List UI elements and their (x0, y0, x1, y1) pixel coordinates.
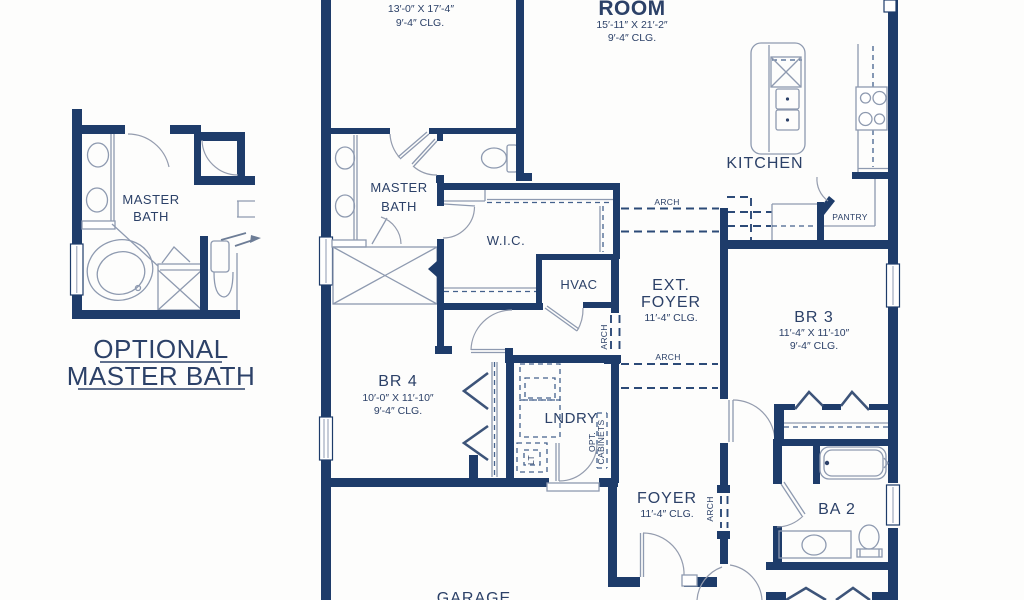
svg-text:ROOM: ROOM (598, 0, 665, 20)
svg-text:9′-4″ CLG.: 9′-4″ CLG. (374, 405, 422, 417)
svg-text:FOYER: FOYER (641, 294, 701, 311)
svg-text:BA 2: BA 2 (818, 501, 856, 518)
svg-text:EXT.: EXT. (652, 277, 690, 294)
svg-text:GARAGE: GARAGE (437, 590, 511, 600)
svg-text:CABINETS: CABINETS (596, 420, 606, 465)
svg-text:LNDRY: LNDRY (544, 410, 597, 427)
svg-text:11′-4″ X 11′-10″: 11′-4″ X 11′-10″ (779, 327, 850, 339)
svg-text:LT: LT (526, 455, 536, 465)
svg-text:ARCH: ARCH (654, 197, 679, 207)
svg-text:ARCH: ARCH (705, 496, 715, 521)
svg-text:9′-4″ CLG.: 9′-4″ CLG. (790, 340, 838, 352)
svg-text:MASTER BATH: MASTER BATH (67, 361, 255, 391)
svg-text:9′-4″ CLG.: 9′-4″ CLG. (608, 32, 656, 44)
svg-text:MASTER: MASTER (370, 180, 427, 195)
svg-text:15′-11″ X 21′-2″: 15′-11″ X 21′-2″ (596, 19, 668, 31)
svg-text:ARCH: ARCH (599, 324, 609, 349)
svg-text:BR 3: BR 3 (794, 309, 834, 326)
svg-text:BR 4: BR 4 (378, 373, 418, 390)
svg-text:10′-0″ X 11′-10″: 10′-0″ X 11′-10″ (362, 392, 434, 404)
svg-text:PANTRY: PANTRY (832, 212, 868, 222)
svg-text:11′-4″ CLG.: 11′-4″ CLG. (640, 508, 693, 520)
svg-text:KITCHEN: KITCHEN (726, 155, 803, 172)
svg-text:13′-0″ X 17′-4″: 13′-0″ X 17′-4″ (388, 3, 455, 15)
svg-text:FOYER: FOYER (637, 490, 697, 507)
svg-text:HVAC: HVAC (560, 277, 597, 292)
svg-text:MASTER: MASTER (122, 192, 179, 207)
svg-text:9′-4″ CLG.: 9′-4″ CLG. (396, 17, 444, 29)
svg-text:ARCH: ARCH (655, 352, 680, 362)
svg-text:BATH: BATH (133, 209, 169, 224)
svg-text:OPTIONAL: OPTIONAL (93, 334, 228, 364)
svg-text:BATH: BATH (381, 199, 417, 214)
svg-text:W.I.C.: W.I.C. (487, 233, 525, 248)
svg-text:11′-4″ CLG.: 11′-4″ CLG. (644, 312, 697, 324)
